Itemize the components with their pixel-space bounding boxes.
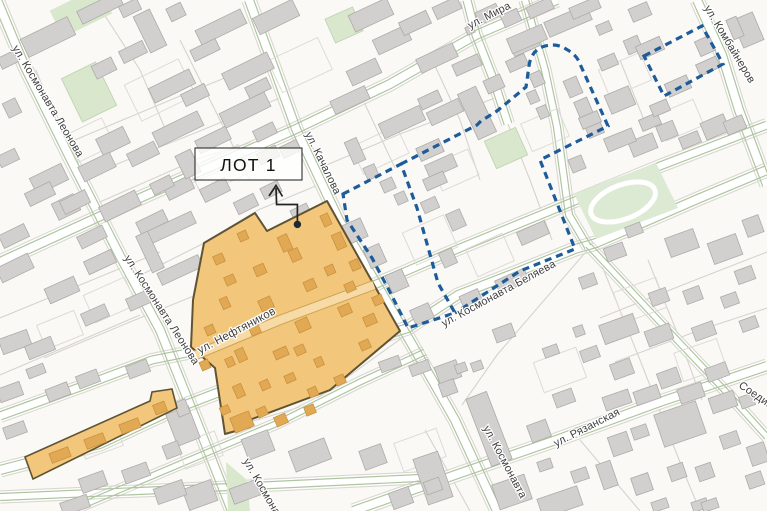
svg-text:ЛОТ 1: ЛОТ 1 <box>220 155 276 175</box>
